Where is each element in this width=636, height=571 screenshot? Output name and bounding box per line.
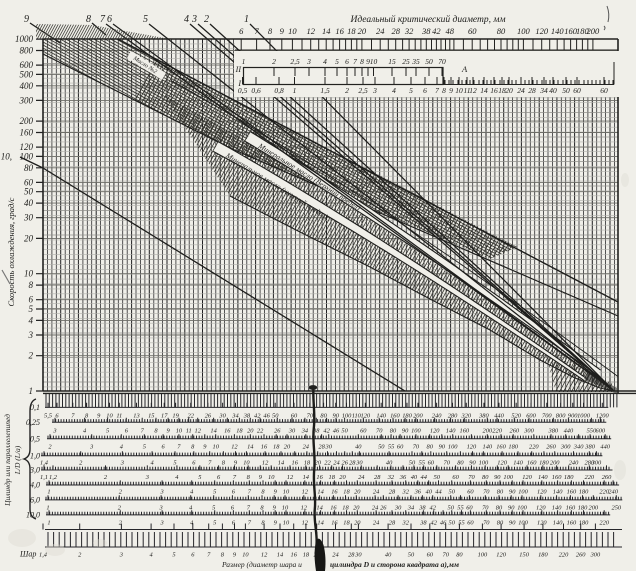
svg-text:55: 55 bbox=[457, 504, 463, 511]
svg-text:24: 24 bbox=[333, 460, 340, 467]
svg-text:700: 700 bbox=[542, 412, 552, 419]
svg-text:10: 10 bbox=[268, 474, 275, 481]
svg-text:50: 50 bbox=[272, 412, 279, 419]
svg-text:1,5: 1,5 bbox=[320, 86, 330, 95]
svg-text:3: 3 bbox=[145, 474, 149, 481]
svg-text:26: 26 bbox=[205, 412, 212, 419]
svg-text:17: 17 bbox=[161, 412, 168, 419]
svg-text:5: 5 bbox=[173, 460, 176, 467]
svg-text:4: 4 bbox=[29, 315, 34, 325]
svg-text:15: 15 bbox=[388, 57, 396, 66]
svg-text:60: 60 bbox=[467, 489, 474, 496]
svg-text:80: 80 bbox=[456, 552, 463, 559]
svg-text:34: 34 bbox=[301, 427, 309, 434]
svg-text:3: 3 bbox=[191, 14, 197, 25]
svg-text:1,2: 1,2 bbox=[49, 474, 58, 481]
svg-text:0,5: 0,5 bbox=[30, 434, 40, 443]
svg-text:24: 24 bbox=[376, 26, 385, 36]
svg-text:16: 16 bbox=[261, 444, 268, 451]
svg-text:440: 440 bbox=[564, 427, 574, 434]
svg-text:60: 60 bbox=[573, 86, 581, 95]
svg-text:0,6: 0,6 bbox=[251, 86, 261, 95]
svg-text:200: 200 bbox=[587, 26, 601, 36]
svg-text:18: 18 bbox=[304, 460, 311, 467]
svg-text:120: 120 bbox=[430, 427, 440, 434]
svg-text:140: 140 bbox=[483, 444, 493, 451]
svg-text:16: 16 bbox=[292, 460, 299, 467]
svg-text:180: 180 bbox=[402, 412, 412, 419]
svg-text:10: 10 bbox=[370, 57, 378, 66]
svg-text:90: 90 bbox=[402, 427, 409, 434]
svg-text:1: 1 bbox=[242, 57, 246, 66]
svg-text:100: 100 bbox=[342, 412, 352, 419]
svg-text:24: 24 bbox=[332, 552, 339, 559]
svg-text:10: 10 bbox=[283, 519, 290, 526]
svg-text:10: 10 bbox=[283, 489, 290, 496]
svg-text:34: 34 bbox=[407, 504, 415, 511]
svg-text:40: 40 bbox=[426, 489, 433, 496]
svg-text:8: 8 bbox=[360, 57, 364, 66]
svg-text:L/D (L/a): L/D (L/a) bbox=[13, 445, 22, 475]
svg-text:60: 60 bbox=[468, 26, 477, 36]
svg-text:320: 320 bbox=[461, 412, 472, 419]
svg-text:2: 2 bbox=[204, 14, 209, 25]
svg-text:3: 3 bbox=[89, 444, 93, 451]
svg-text:70: 70 bbox=[413, 444, 420, 451]
svg-text:70: 70 bbox=[307, 412, 314, 419]
svg-text:10,: 10, bbox=[1, 151, 12, 161]
svg-text:3: 3 bbox=[119, 552, 123, 559]
svg-text:18: 18 bbox=[303, 552, 310, 559]
svg-text:22: 22 bbox=[324, 460, 331, 467]
svg-text:38: 38 bbox=[243, 412, 251, 419]
svg-text:12: 12 bbox=[262, 460, 269, 467]
svg-text:3: 3 bbox=[158, 504, 162, 511]
svg-text:46: 46 bbox=[333, 427, 340, 434]
svg-text:14: 14 bbox=[277, 552, 284, 559]
svg-text:28: 28 bbox=[389, 519, 396, 526]
svg-text:8: 8 bbox=[442, 86, 446, 95]
svg-text:90: 90 bbox=[469, 460, 476, 467]
svg-text:140: 140 bbox=[376, 412, 386, 419]
svg-text:60: 60 bbox=[360, 427, 367, 434]
svg-text:240: 240 bbox=[608, 489, 618, 496]
svg-text:70: 70 bbox=[438, 57, 446, 66]
svg-text:260: 260 bbox=[546, 444, 556, 451]
svg-text:7: 7 bbox=[254, 26, 259, 36]
svg-text:260: 260 bbox=[602, 474, 612, 481]
svg-text:40: 40 bbox=[411, 474, 418, 481]
svg-text:100: 100 bbox=[478, 552, 488, 559]
svg-text:50: 50 bbox=[378, 444, 385, 451]
svg-text:1: 1 bbox=[293, 86, 297, 95]
svg-text:18: 18 bbox=[273, 444, 280, 451]
svg-text:20: 20 bbox=[247, 427, 254, 434]
svg-text:1: 1 bbox=[46, 504, 49, 511]
svg-text:80: 80 bbox=[496, 504, 503, 511]
svg-text:24: 24 bbox=[517, 86, 525, 95]
svg-text:600: 600 bbox=[596, 427, 606, 434]
svg-text:5: 5 bbox=[213, 519, 216, 526]
svg-text:34: 34 bbox=[539, 86, 548, 95]
svg-text:12: 12 bbox=[231, 444, 238, 451]
svg-text:80: 80 bbox=[497, 519, 504, 526]
svg-text:42: 42 bbox=[432, 26, 441, 36]
svg-text:60: 60 bbox=[427, 552, 434, 559]
svg-text:16: 16 bbox=[490, 86, 498, 95]
svg-text:120: 120 bbox=[497, 460, 507, 467]
svg-text:40: 40 bbox=[355, 444, 362, 451]
svg-text:1,1: 1,1 bbox=[40, 474, 48, 481]
svg-text:600: 600 bbox=[526, 412, 536, 419]
svg-text:42: 42 bbox=[323, 427, 330, 434]
svg-text:28: 28 bbox=[374, 474, 381, 481]
svg-text:300: 300 bbox=[523, 427, 534, 434]
svg-text:1000: 1000 bbox=[577, 412, 591, 419]
svg-text:5: 5 bbox=[143, 444, 146, 451]
svg-text:8: 8 bbox=[86, 14, 91, 25]
svg-text:5: 5 bbox=[29, 304, 34, 314]
svg-text:140: 140 bbox=[538, 474, 548, 481]
svg-text:380: 380 bbox=[584, 444, 595, 451]
svg-text:100: 100 bbox=[20, 151, 34, 161]
svg-text:16: 16 bbox=[335, 26, 344, 36]
svg-text:14: 14 bbox=[316, 504, 323, 511]
svg-text:120: 120 bbox=[467, 444, 477, 451]
svg-text:10: 10 bbox=[176, 427, 183, 434]
svg-text:40: 40 bbox=[24, 198, 34, 208]
svg-text:38: 38 bbox=[418, 504, 426, 511]
svg-text:Идеальный критический диаметр,: Идеальный критический диаметр, мм bbox=[349, 14, 505, 25]
svg-text:28: 28 bbox=[528, 86, 536, 95]
svg-text:14: 14 bbox=[210, 427, 217, 434]
svg-text:180: 180 bbox=[539, 460, 549, 467]
svg-text:18: 18 bbox=[343, 489, 350, 496]
svg-text:1000: 1000 bbox=[15, 34, 34, 44]
svg-text:6: 6 bbox=[107, 14, 112, 25]
svg-text:280: 280 bbox=[448, 412, 458, 419]
svg-text:12: 12 bbox=[469, 86, 477, 95]
svg-text:14: 14 bbox=[247, 444, 254, 451]
svg-text:36: 36 bbox=[399, 474, 407, 481]
svg-text:26: 26 bbox=[274, 427, 281, 434]
svg-text:35: 35 bbox=[411, 57, 420, 66]
svg-text:50: 50 bbox=[434, 474, 441, 481]
svg-text:160: 160 bbox=[496, 444, 506, 451]
svg-text:20: 20 bbox=[505, 86, 513, 95]
svg-text:А: А bbox=[461, 64, 468, 74]
svg-text:14: 14 bbox=[317, 519, 324, 526]
svg-text:Шар: Шар bbox=[19, 550, 36, 559]
svg-text:4,0: 4,0 bbox=[30, 481, 40, 490]
svg-text:14: 14 bbox=[480, 86, 488, 95]
svg-text:9: 9 bbox=[449, 86, 453, 95]
svg-text:180: 180 bbox=[578, 504, 588, 511]
svg-text:3: 3 bbox=[120, 460, 124, 467]
svg-text:20: 20 bbox=[339, 474, 346, 481]
svg-text:220: 220 bbox=[492, 427, 502, 434]
svg-text:400: 400 bbox=[20, 81, 34, 91]
svg-text:28: 28 bbox=[391, 26, 400, 36]
svg-text:5: 5 bbox=[213, 489, 216, 496]
svg-text:80: 80 bbox=[497, 489, 504, 496]
svg-text:18: 18 bbox=[347, 26, 356, 36]
svg-text:6: 6 bbox=[239, 26, 244, 36]
svg-text:1: 1 bbox=[244, 14, 249, 25]
svg-text:60: 60 bbox=[452, 474, 459, 481]
svg-text:440: 440 bbox=[600, 444, 610, 451]
svg-text:16: 16 bbox=[316, 474, 323, 481]
svg-text:18: 18 bbox=[342, 504, 349, 511]
svg-text:4: 4 bbox=[392, 86, 396, 95]
svg-text:4: 4 bbox=[323, 57, 327, 66]
svg-text:500: 500 bbox=[20, 69, 34, 79]
svg-text:30: 30 bbox=[355, 460, 363, 467]
svg-text:4: 4 bbox=[184, 14, 189, 25]
svg-text:80: 80 bbox=[24, 163, 34, 173]
svg-text:Цилиндр или параллелепипед: Цилиндр или параллелепипед bbox=[3, 414, 12, 507]
svg-text:10: 10 bbox=[243, 460, 250, 467]
svg-text:70: 70 bbox=[483, 519, 490, 526]
svg-text:240: 240 bbox=[432, 412, 442, 419]
svg-text:50: 50 bbox=[425, 57, 433, 66]
svg-text:20: 20 bbox=[24, 233, 34, 243]
svg-text:10: 10 bbox=[242, 552, 249, 559]
svg-text:36: 36 bbox=[414, 489, 422, 496]
svg-text:44: 44 bbox=[421, 474, 428, 481]
svg-text:30: 30 bbox=[288, 427, 296, 434]
svg-text:42: 42 bbox=[430, 504, 437, 511]
svg-text:38: 38 bbox=[421, 26, 431, 36]
svg-text:50: 50 bbox=[24, 187, 34, 197]
svg-text:160: 160 bbox=[527, 460, 537, 467]
svg-text:32: 32 bbox=[387, 474, 395, 481]
svg-text:II: II bbox=[235, 65, 242, 74]
svg-text:5: 5 bbox=[106, 427, 109, 434]
svg-text:24: 24 bbox=[303, 444, 310, 451]
svg-text:0,8: 0,8 bbox=[274, 86, 284, 95]
svg-text:90: 90 bbox=[508, 504, 515, 511]
svg-text:14: 14 bbox=[317, 489, 324, 496]
svg-text:24: 24 bbox=[372, 504, 379, 511]
svg-text:60: 60 bbox=[467, 519, 474, 526]
svg-text:16: 16 bbox=[224, 427, 231, 434]
svg-text:80: 80 bbox=[497, 26, 506, 36]
svg-text:160: 160 bbox=[20, 128, 34, 138]
svg-text:11: 11 bbox=[186, 427, 192, 434]
svg-text:1: 1 bbox=[47, 489, 50, 496]
svg-text:14: 14 bbox=[322, 26, 331, 36]
svg-text:11: 11 bbox=[116, 412, 122, 419]
svg-text:140: 140 bbox=[553, 519, 563, 526]
svg-text:120: 120 bbox=[536, 504, 546, 511]
svg-text:160: 160 bbox=[390, 412, 400, 419]
svg-text:24: 24 bbox=[358, 474, 365, 481]
svg-text:40: 40 bbox=[549, 86, 557, 95]
svg-text:90: 90 bbox=[439, 444, 446, 451]
svg-text:цилиндра D и сторона квадрата: цилиндра D и сторона квадрата а),мм bbox=[330, 560, 459, 569]
svg-text:1200: 1200 bbox=[596, 412, 610, 419]
svg-text:120: 120 bbox=[535, 26, 549, 36]
svg-text:160: 160 bbox=[567, 519, 577, 526]
svg-text:16: 16 bbox=[330, 504, 337, 511]
svg-text:20: 20 bbox=[354, 489, 361, 496]
svg-text:12: 12 bbox=[302, 519, 309, 526]
svg-text:3: 3 bbox=[28, 330, 34, 340]
svg-text:0,25: 0,25 bbox=[26, 418, 40, 427]
svg-text:800: 800 bbox=[556, 412, 566, 419]
svg-text:5: 5 bbox=[335, 57, 339, 66]
svg-text:80: 80 bbox=[427, 444, 434, 451]
svg-text:60: 60 bbox=[600, 86, 608, 95]
svg-text:70: 70 bbox=[483, 489, 490, 496]
svg-text:3: 3 bbox=[372, 86, 377, 95]
svg-text:50: 50 bbox=[341, 427, 348, 434]
svg-text:70: 70 bbox=[443, 552, 450, 559]
svg-text:12: 12 bbox=[302, 489, 309, 496]
svg-text:300: 300 bbox=[560, 444, 571, 451]
svg-text:15: 15 bbox=[148, 412, 154, 419]
svg-text:100: 100 bbox=[448, 444, 458, 451]
svg-text:800: 800 bbox=[20, 46, 34, 56]
svg-text:5: 5 bbox=[212, 504, 215, 511]
svg-text:90: 90 bbox=[509, 489, 516, 496]
svg-text:20: 20 bbox=[358, 26, 367, 36]
svg-text:24: 24 bbox=[373, 489, 380, 496]
svg-text:Скорость охлаждения, град/с: Скорость охлаждения, град/с bbox=[6, 197, 16, 306]
svg-text:46: 46 bbox=[263, 412, 270, 419]
svg-text:6: 6 bbox=[345, 57, 349, 66]
svg-text:260: 260 bbox=[576, 552, 586, 559]
svg-text:12: 12 bbox=[301, 504, 308, 511]
svg-text:14: 14 bbox=[303, 474, 310, 481]
svg-text:18: 18 bbox=[329, 474, 336, 481]
svg-text:32: 32 bbox=[404, 26, 414, 36]
svg-text:34: 34 bbox=[231, 412, 239, 419]
svg-text:90: 90 bbox=[494, 474, 501, 481]
svg-text:220: 220 bbox=[585, 474, 595, 481]
svg-text:120: 120 bbox=[496, 552, 506, 559]
svg-text:28: 28 bbox=[389, 489, 396, 496]
svg-text:180: 180 bbox=[538, 552, 548, 559]
svg-text:80: 80 bbox=[390, 427, 397, 434]
svg-text:2: 2 bbox=[272, 57, 276, 66]
svg-text:16: 16 bbox=[331, 489, 338, 496]
svg-text:60: 60 bbox=[428, 460, 435, 467]
svg-text:10: 10 bbox=[282, 504, 289, 511]
svg-text:220: 220 bbox=[599, 519, 609, 526]
svg-text:50: 50 bbox=[449, 489, 456, 496]
svg-text:220: 220 bbox=[559, 552, 569, 559]
svg-text:10: 10 bbox=[455, 86, 463, 95]
svg-text:2: 2 bbox=[345, 86, 349, 95]
svg-text:3: 3 bbox=[306, 57, 311, 66]
svg-text:380: 380 bbox=[548, 427, 559, 434]
svg-text:50: 50 bbox=[409, 460, 416, 467]
svg-text:2: 2 bbox=[29, 351, 34, 361]
svg-text:160: 160 bbox=[566, 504, 576, 511]
svg-text:18: 18 bbox=[343, 519, 350, 526]
svg-text:100: 100 bbox=[518, 489, 528, 496]
svg-text:40: 40 bbox=[386, 460, 393, 467]
svg-text:120: 120 bbox=[537, 519, 547, 526]
svg-text:50: 50 bbox=[449, 519, 456, 526]
svg-text:220: 220 bbox=[529, 444, 539, 451]
svg-text:16: 16 bbox=[291, 552, 298, 559]
svg-text:20: 20 bbox=[354, 519, 361, 526]
svg-text:16: 16 bbox=[331, 519, 338, 526]
svg-text:100: 100 bbox=[517, 26, 531, 36]
svg-text:140: 140 bbox=[513, 460, 523, 467]
svg-text:12: 12 bbox=[261, 552, 268, 559]
svg-text:5: 5 bbox=[198, 474, 201, 481]
svg-text:55: 55 bbox=[388, 444, 394, 451]
svg-text:140: 140 bbox=[552, 504, 562, 511]
svg-text:60: 60 bbox=[397, 444, 404, 451]
svg-text:440: 440 bbox=[494, 412, 504, 419]
svg-text:160: 160 bbox=[552, 474, 562, 481]
svg-text:300: 300 bbox=[19, 95, 34, 105]
svg-text:32: 32 bbox=[402, 489, 410, 496]
svg-text:50: 50 bbox=[448, 504, 455, 511]
svg-text:2,5: 2,5 bbox=[358, 86, 368, 95]
svg-text:30: 30 bbox=[325, 444, 333, 451]
svg-text:1,0: 1,0 bbox=[30, 451, 40, 460]
svg-text:8: 8 bbox=[29, 280, 34, 290]
svg-text:200: 200 bbox=[589, 504, 599, 511]
svg-text:7: 7 bbox=[353, 57, 357, 66]
svg-text:9: 9 bbox=[24, 14, 29, 25]
svg-text:38: 38 bbox=[419, 519, 427, 526]
svg-text:9: 9 bbox=[280, 26, 285, 36]
svg-text:50: 50 bbox=[562, 86, 570, 95]
svg-text:120: 120 bbox=[537, 489, 547, 496]
svg-text:160: 160 bbox=[567, 489, 577, 496]
svg-text:5: 5 bbox=[409, 86, 413, 95]
svg-text:1: 1 bbox=[47, 519, 50, 526]
svg-text:60: 60 bbox=[466, 504, 473, 511]
svg-text:3: 3 bbox=[52, 427, 56, 434]
svg-text:5: 5 bbox=[143, 14, 148, 25]
svg-text:80: 80 bbox=[457, 460, 464, 467]
svg-text:10: 10 bbox=[213, 444, 220, 451]
svg-text:12: 12 bbox=[195, 427, 202, 434]
svg-text:13: 13 bbox=[133, 412, 139, 419]
svg-text:12: 12 bbox=[287, 474, 294, 481]
svg-text:80: 80 bbox=[482, 474, 489, 481]
svg-text:140: 140 bbox=[553, 489, 563, 496]
svg-text:120: 120 bbox=[522, 474, 532, 481]
svg-text:180: 180 bbox=[564, 474, 574, 481]
svg-text:300: 300 bbox=[590, 552, 601, 559]
svg-text:70: 70 bbox=[482, 504, 489, 511]
svg-text:44: 44 bbox=[435, 489, 442, 496]
svg-text:42: 42 bbox=[431, 519, 438, 526]
svg-text:30: 30 bbox=[23, 213, 34, 223]
svg-text:140: 140 bbox=[551, 26, 565, 36]
svg-text:I: I bbox=[237, 79, 241, 88]
svg-text:2,5: 2,5 bbox=[290, 57, 300, 66]
svg-text:6,0: 6,0 bbox=[30, 495, 40, 504]
svg-text:140: 140 bbox=[446, 427, 456, 434]
svg-text:30: 30 bbox=[218, 412, 226, 419]
svg-text:150: 150 bbox=[519, 552, 529, 559]
svg-text:12: 12 bbox=[306, 26, 315, 36]
svg-text:100: 100 bbox=[517, 504, 527, 511]
svg-text:20: 20 bbox=[353, 504, 360, 511]
svg-text:160: 160 bbox=[460, 427, 470, 434]
svg-text:100: 100 bbox=[518, 519, 528, 526]
